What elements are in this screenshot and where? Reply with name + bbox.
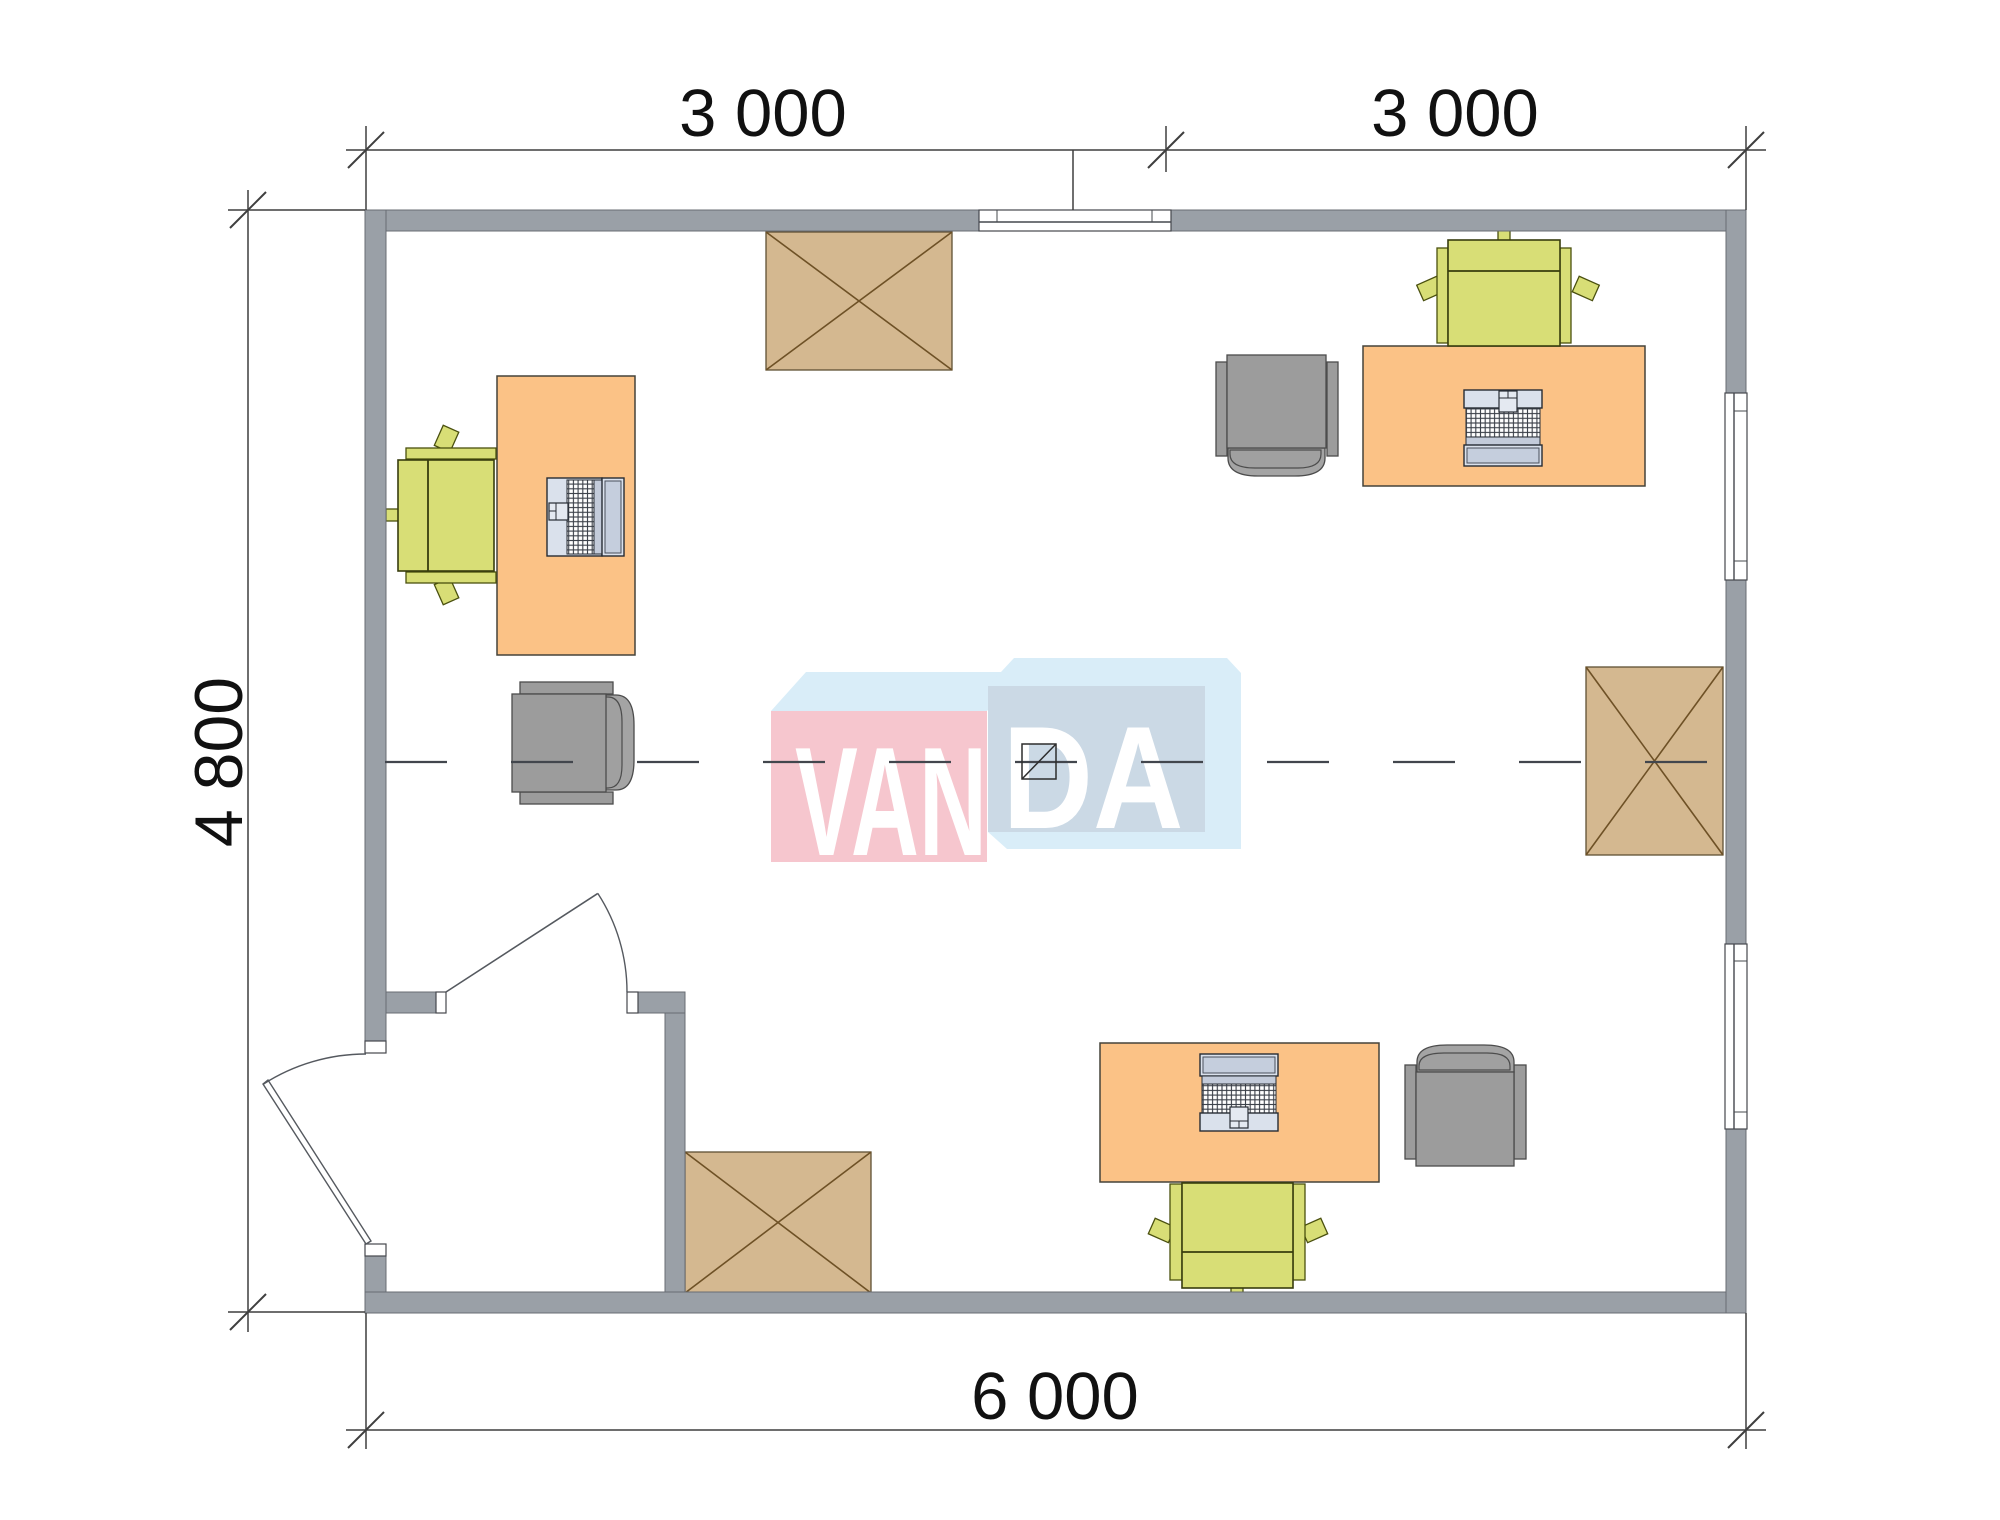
svg-text:4 800: 4 800 bbox=[181, 677, 257, 847]
svg-text:3 000: 3 000 bbox=[1371, 76, 1539, 151]
svg-text:VAN: VAN bbox=[795, 715, 987, 888]
svg-text:6 000: 6 000 bbox=[971, 1359, 1139, 1434]
svg-text:3 000: 3 000 bbox=[679, 76, 847, 151]
